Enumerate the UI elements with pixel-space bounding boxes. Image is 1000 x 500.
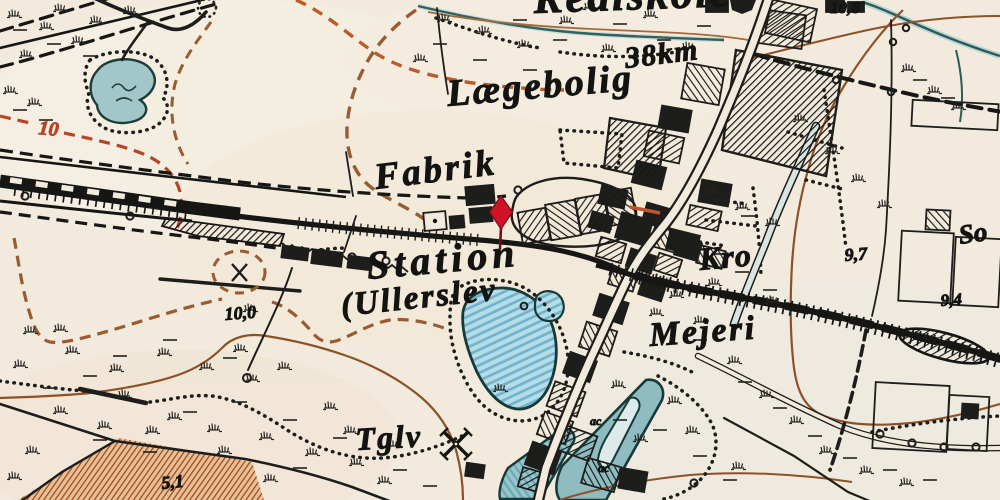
svg-text:10: 10 (37, 117, 59, 141)
svg-text:ac: ac (598, 461, 610, 475)
svg-text:Mejeri: Mejeri (647, 310, 758, 354)
svg-text:Tglv: Tglv (354, 418, 422, 457)
svg-text:10,6: 10,6 (830, 0, 860, 17)
svg-text:9,4: 9,4 (940, 290, 963, 310)
svg-text:10,0: 10,0 (224, 302, 257, 324)
svg-text:Kro: Kro (696, 237, 753, 278)
svg-text:So: So (957, 216, 989, 250)
svg-text:ac: ac (590, 414, 602, 428)
svg-text:5,1: 5,1 (160, 471, 184, 493)
svg-text:9,7: 9,7 (844, 243, 869, 265)
